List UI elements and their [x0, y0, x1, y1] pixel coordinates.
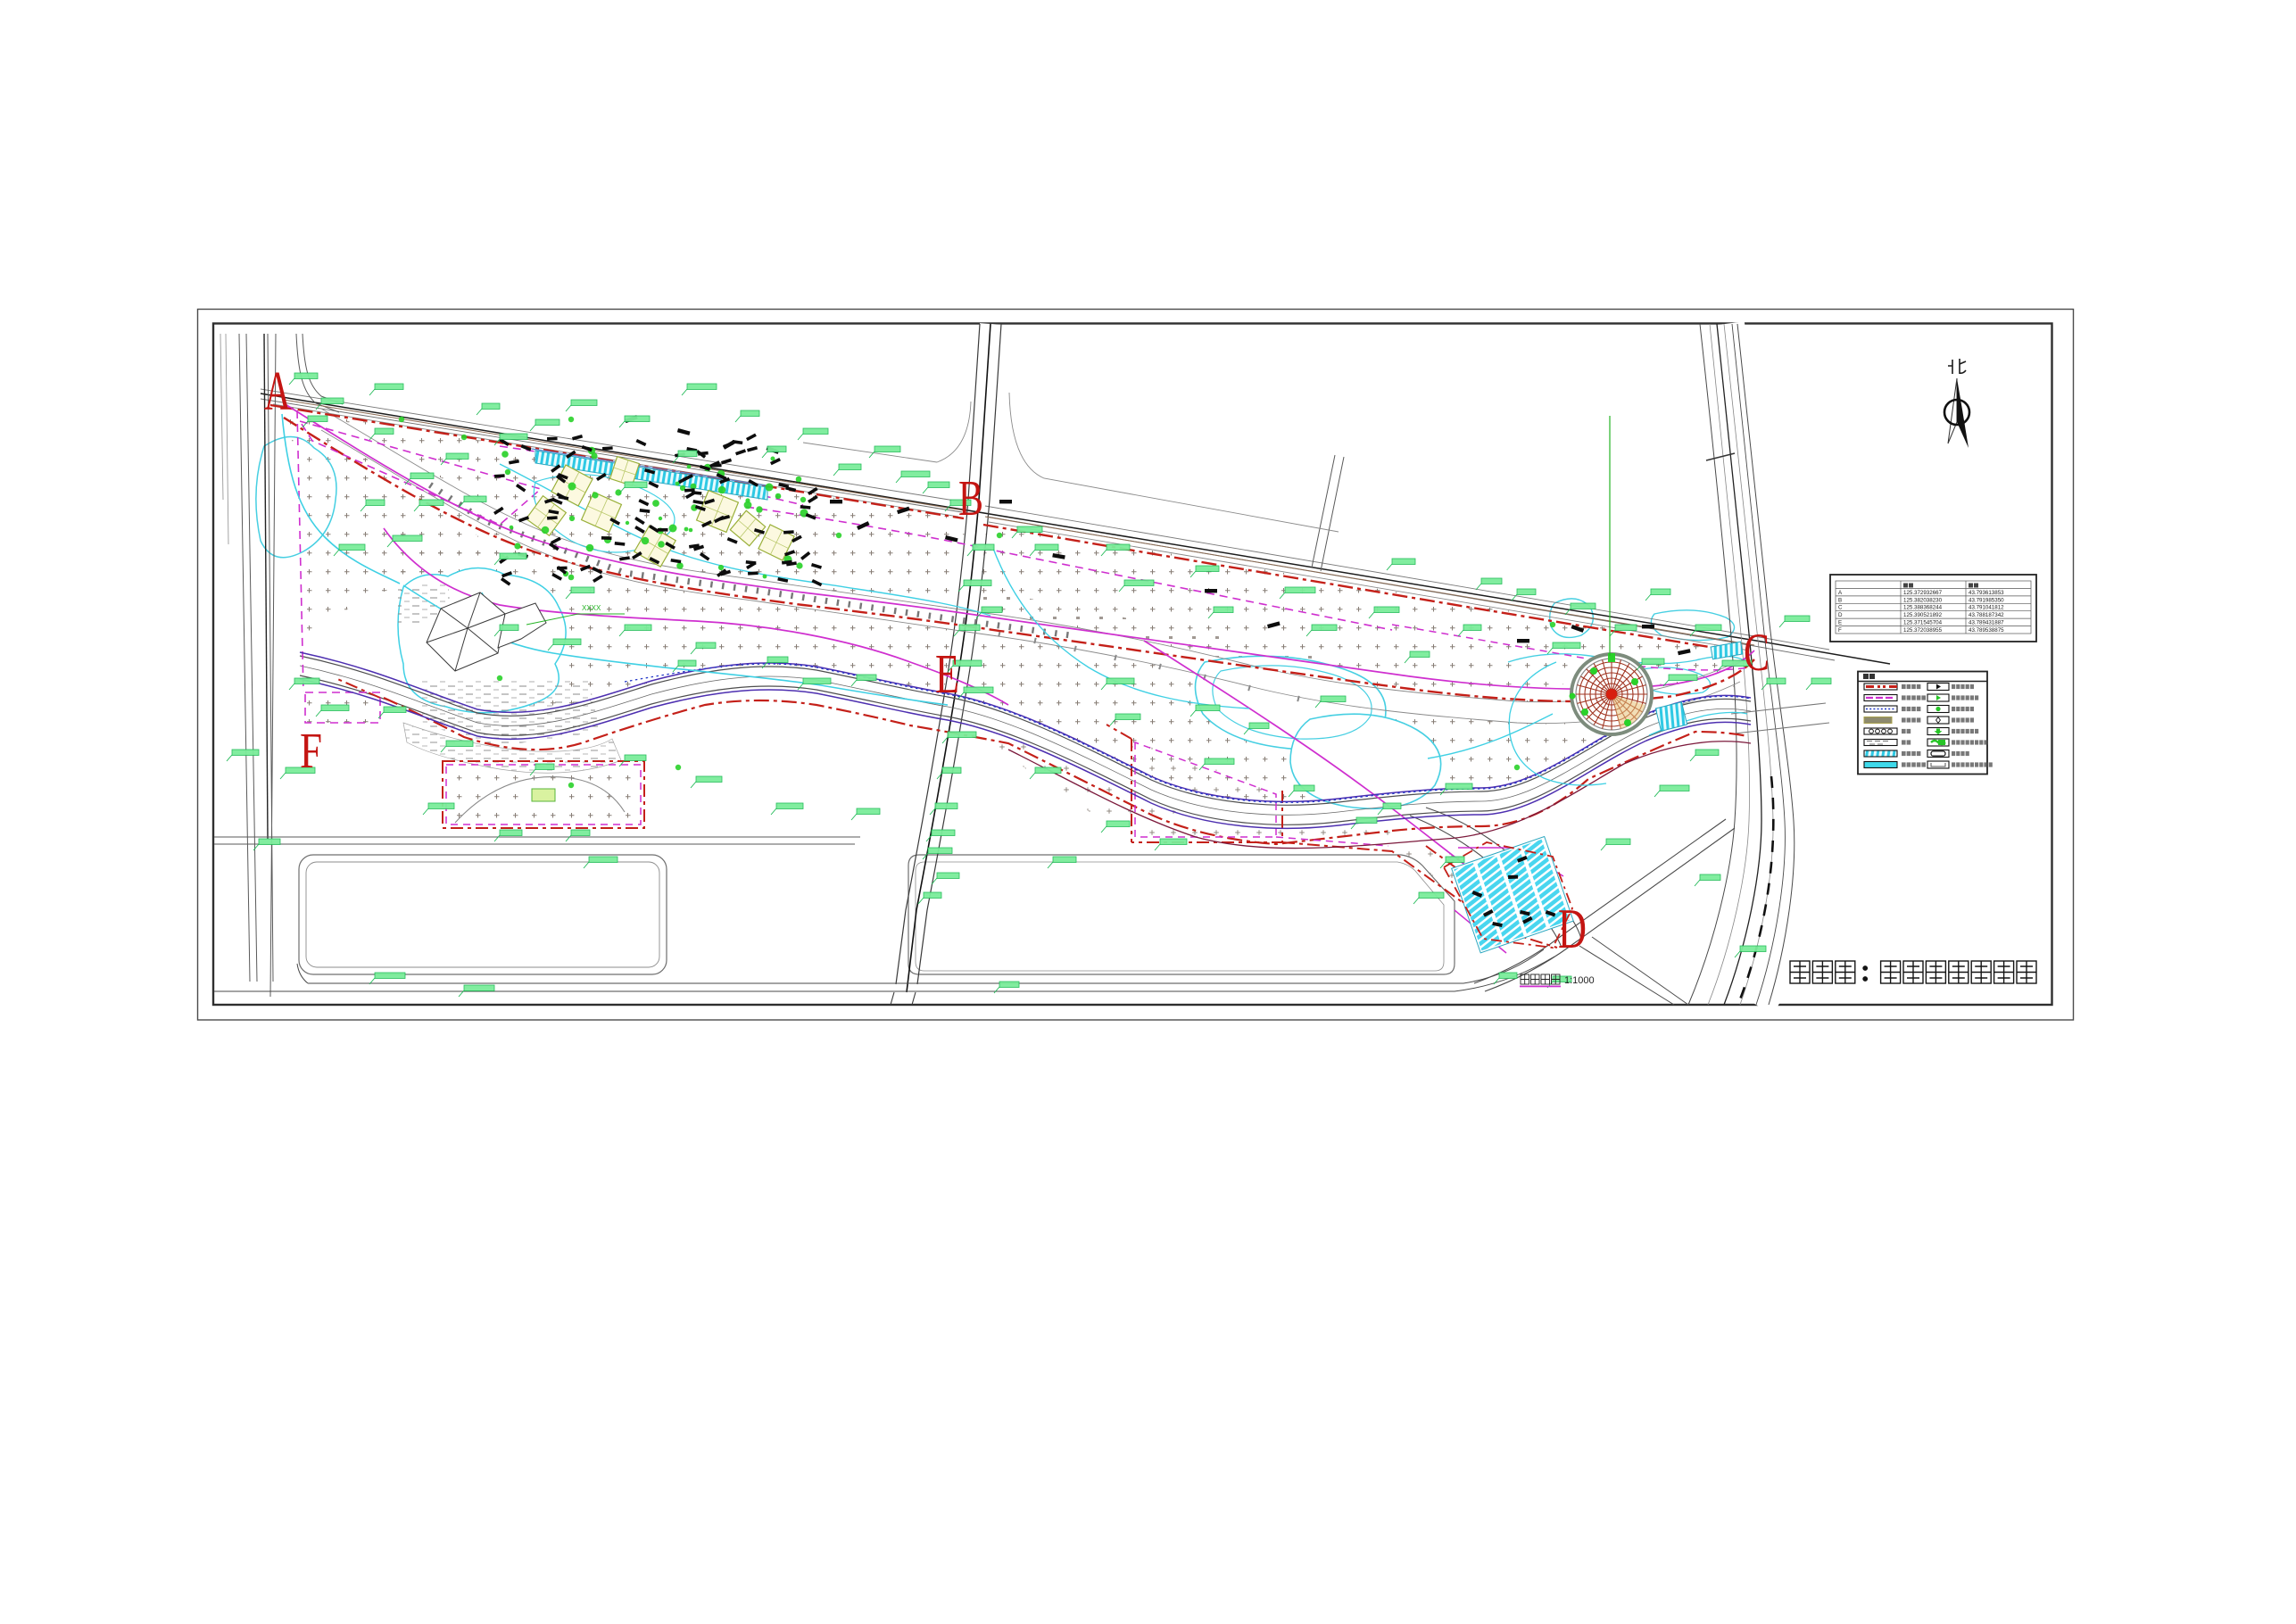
svg-text:A: A [264, 361, 291, 422]
svg-text:1:1000: 1:1000 [1564, 975, 1595, 986]
svg-text:C: C [1744, 623, 1770, 682]
svg-text:B: B [958, 471, 983, 526]
svg-text:C: C [1838, 605, 1843, 611]
svg-text:43.791041812: 43.791041812 [1969, 605, 2004, 611]
svg-text:43.793613853: 43.793613853 [1969, 590, 2004, 596]
svg-text:F: F [300, 724, 322, 779]
svg-text:D: D [1838, 612, 1843, 618]
svg-text:B: B [1838, 597, 1842, 603]
svg-text:125.372932667: 125.372932667 [1903, 590, 1943, 596]
svg-text:43.789431887: 43.789431887 [1969, 620, 2004, 626]
svg-text:43.788187342: 43.788187342 [1969, 612, 2004, 618]
svg-text:125.372038955: 125.372038955 [1903, 627, 1943, 634]
svg-text:D: D [1558, 897, 1587, 960]
svg-text:125.382038230: 125.382038230 [1903, 597, 1943, 603]
svg-text:E: E [935, 644, 959, 705]
svg-text:125.371545704: 125.371545704 [1903, 620, 1943, 626]
svg-text:XXXX: XXXX [582, 604, 601, 612]
svg-text:125.388368244: 125.388368244 [1903, 605, 1943, 611]
svg-text:43.789538875: 43.789538875 [1969, 627, 2004, 634]
svg-text:F: F [1838, 627, 1842, 634]
svg-text:43.791985350: 43.791985350 [1969, 597, 2004, 603]
svg-text:125.390521892: 125.390521892 [1903, 612, 1943, 618]
svg-text:E: E [1838, 620, 1842, 626]
